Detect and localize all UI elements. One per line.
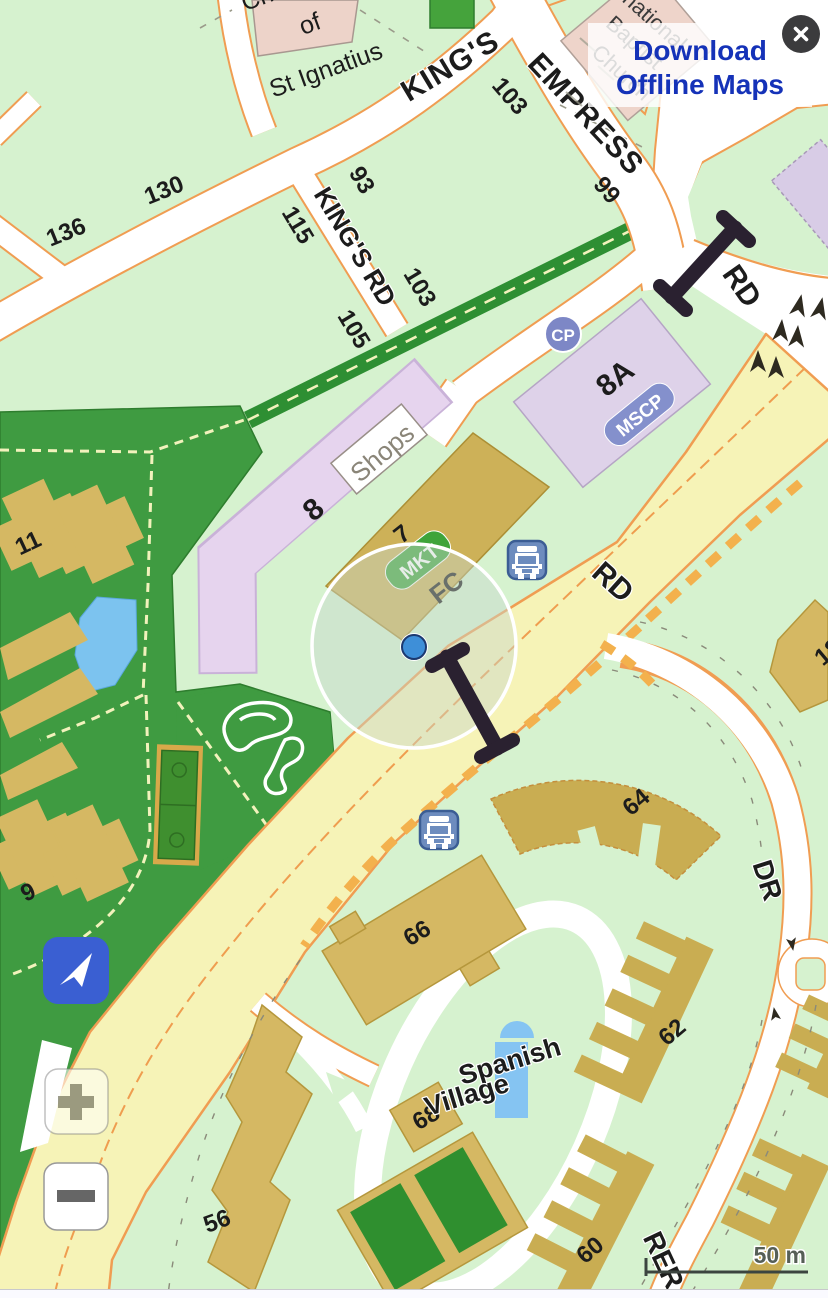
svg-text:50 m: 50 m <box>754 1242 806 1268</box>
svg-text:Download: Download <box>633 35 767 66</box>
svg-text:Offline Maps: Offline Maps <box>616 69 784 100</box>
svg-text:CP: CP <box>551 326 575 345</box>
